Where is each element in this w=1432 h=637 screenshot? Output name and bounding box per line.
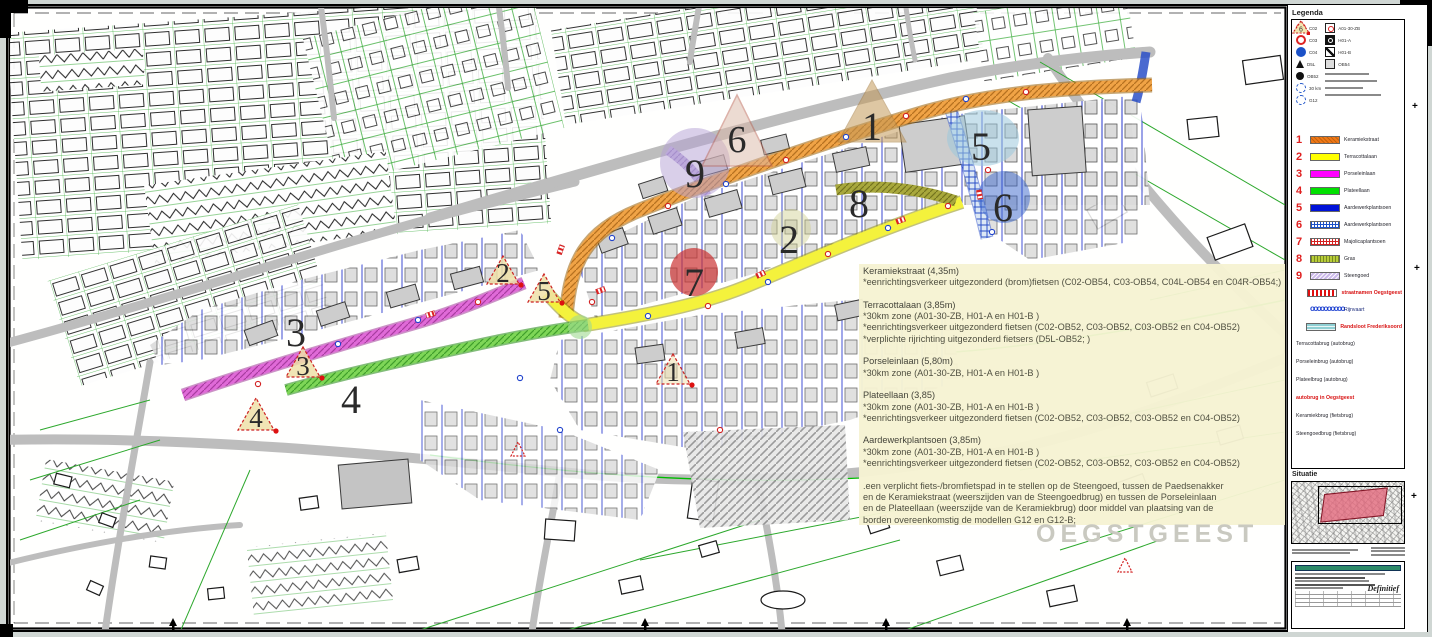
swatch-rijnvaart: oooooooooo (1310, 305, 1340, 314)
marker-street-8: 8 (849, 181, 869, 226)
streetnames-label: straatnamen Oegstgeest (1341, 290, 1402, 296)
situatie-inset-map (1291, 481, 1405, 544)
annotation-line: *30km zone (A01-30-ZB, H01-A en H01-B ) (863, 402, 1285, 413)
annotation-line: *verplichte rijrichting uitgezonderd fie… (863, 334, 1285, 345)
sign-label: D5L (1307, 62, 1315, 67)
street-number: 2 (1296, 151, 1306, 163)
swatch-porseleinlaan (1310, 170, 1340, 178)
bridge-label: Terracottabrug (autobrug) (1296, 341, 1355, 347)
marker-street-3: 3 (286, 310, 306, 355)
street-label: Steengoed (1344, 273, 1369, 279)
legend-signs: C02 C03 C04 D5L OB52 30 km G12 A01-30-ZB… (1296, 23, 1402, 105)
sign-label: A01-30-ZB (1338, 26, 1360, 31)
sign-label: H01-B (1338, 50, 1351, 55)
annotation-line (863, 379, 1285, 390)
street-label: Keramiekstraat (1344, 137, 1379, 143)
annotation-line: en de Plateellaan (weerszijde van de Ker… (863, 503, 1285, 514)
swatch-plateellaan (1310, 187, 1340, 195)
street-label: Plateellaan (1344, 188, 1370, 194)
street-label: Porseleinlaan (1344, 171, 1375, 177)
legend-rijnvaart-row: ooooooooooRijnvaart (1296, 301, 1402, 318)
street-number: 3 (1296, 168, 1306, 180)
annotation-line: *30km zone (A01-30-ZB, H01-A en H01-B ) (863, 447, 1285, 458)
annotation-line (863, 345, 1285, 356)
sign-label: OB52 (1307, 74, 1319, 79)
marker-street-7: 7 (684, 260, 704, 305)
marker-street-5: 5 (971, 124, 991, 169)
marker-street-6: 6 (993, 185, 1013, 230)
swatch-majolicaplantsoen (1310, 238, 1340, 246)
sign-icon-zone-30 (1325, 23, 1335, 33)
swatch-randsloot (1306, 323, 1336, 331)
annotation-line (863, 424, 1285, 435)
annotation-line: *eenrichtingsverkeer uitgezonderd fietse… (863, 322, 1285, 333)
street-label: Gras (1344, 256, 1355, 262)
rijnvaart-label: Rijnvaart (1344, 307, 1364, 313)
sign-icon-mandatory (1296, 47, 1306, 57)
swatch-keramiekstraat (1310, 136, 1340, 144)
street-label: Terracottalaan (1344, 154, 1377, 160)
marker-bridge-3: 3 (296, 351, 310, 381)
svg-text:6: 6 (1299, 27, 1303, 34)
legend-street-row: 3Porseleinlaan (1296, 165, 1402, 182)
sign-label: 30 km (1309, 86, 1321, 91)
annotation-line: *eenrichtingsverkeer uitgezonderd fietse… (863, 413, 1285, 424)
bridge-label: Steengoedbrug (fietsbrug) (1296, 431, 1356, 437)
sign-label: C03 (1309, 38, 1317, 43)
legend-street-row: 4Plateellaan (1296, 182, 1402, 199)
marker-bridge-1: 1 (666, 357, 680, 387)
legend-bridge-row: 6Steengoedbrug (fietsbrug) (1296, 425, 1402, 443)
legend-street-row: 1Keramiekstraat (1296, 131, 1402, 148)
annotation-line (863, 289, 1285, 300)
street-number: 1 (1296, 134, 1306, 146)
revision-table (1295, 591, 1401, 607)
marker-bridge-5: 5 (537, 276, 551, 306)
legend-street-row: 2Terracottalaan (1296, 148, 1402, 165)
marker-street-9: 9 (685, 151, 705, 196)
street-label: Aardewerkplantsoen (1344, 222, 1391, 228)
swatch-steengoed (1310, 272, 1340, 280)
street-number: 6 (1296, 219, 1306, 231)
annotation-line: Aardewerkplantsoen (3,85m) (863, 435, 1285, 446)
legend-bridge-row: 4autobrug in Oegstgeest (1296, 389, 1402, 407)
swatch-gras (1310, 255, 1340, 263)
sign-label: C02 (1309, 26, 1317, 31)
sign-icon-subplate (1325, 59, 1335, 69)
annotation-line: Porseleinlaan (5,80m) (863, 356, 1285, 367)
street-label: Majolicaplantsoen (1344, 239, 1386, 245)
oegstgeest-watermark: OEGSTGEEST (1036, 520, 1258, 549)
annotation-line: Plateellaan (3,85) (863, 390, 1285, 401)
legend-title: Legenda (1292, 8, 1427, 17)
sign-icon-dashed-circle (1296, 83, 1306, 93)
status-definitief: Definitief (1367, 584, 1399, 593)
street-number: 7 (1296, 236, 1306, 248)
swatch-aardewerkplantsoen-hatch (1310, 221, 1340, 229)
legend-street-row: 9Steengoed (1296, 267, 1402, 284)
legend-street-row: 6Aardewerkplantsoen (1296, 216, 1402, 233)
bridge-triangle-icon: 6 (1292, 20, 1310, 35)
annotation-line: *eenrichtingsverkeer uitgezonderd fietse… (863, 458, 1285, 469)
legend-bridge-row: 5Keramiekbrug (fietsbrug) (1296, 407, 1402, 425)
annotation-line: Terracottalaan (3,85m) (863, 300, 1285, 311)
annotation-line (863, 469, 1285, 480)
legend-bridge-row: 1Terracottabrug (autobrug) (1296, 335, 1402, 353)
bridge-label: autobrug in Oegstgeest (1296, 395, 1354, 401)
annotation-line: *30km zone (A01-30-ZB, H01-A en H01-B ) (863, 368, 1285, 379)
legend-street-row: 7Majolicaplantsoen (1296, 233, 1402, 250)
annotation-line: Keramiekstraat (4,35m) (863, 266, 1285, 277)
sign-icon-square-black (1325, 35, 1335, 45)
swatch-aardewerkplantsoen (1310, 204, 1340, 212)
marker-bridge-6: 6 (728, 119, 747, 161)
randsloot-label: Randsloot Frederiksoord (1340, 324, 1402, 330)
legend-streetnames-row: straatnamen Oegstgeest (1296, 284, 1402, 301)
marker-bridge-2: 2 (496, 258, 510, 288)
plan-sheet: 1 2 3 4 5 6 7 8 9 6 2 5 3 4 1 Keramiekst… (0, 0, 1432, 637)
bridge-label: Keramiekbrug (fietsbrug) (1296, 413, 1353, 419)
marker-street-4: 4 (341, 377, 361, 422)
street-label: Aardewerkplantsoen (1344, 205, 1391, 211)
sign-label: G12 (1309, 98, 1318, 103)
sign-icon-direction-arrow (1296, 60, 1304, 68)
street-number: 4 (1296, 185, 1306, 197)
title-block: Definitief (1291, 561, 1405, 629)
annotation-line: .een verplicht fiets-/bromfietspad in te… (863, 481, 1285, 492)
marker-bridge-4: 4 (249, 403, 263, 433)
street-number: 8 (1296, 253, 1306, 265)
title-block-header-bar (1295, 565, 1401, 571)
legend-box: C02 C03 C04 D5L OB52 30 km G12 A01-30-ZB… (1291, 19, 1405, 469)
bridge-label: Porseleinbrug (autobrug) (1296, 359, 1353, 365)
sign-icon-point (1296, 72, 1304, 80)
street-number: 5 (1296, 202, 1306, 214)
sign-label: OB54 (1338, 62, 1350, 67)
legend-panel: Legenda C02 C03 C04 D5L OB52 30 km G12 A… (1287, 5, 1427, 632)
legend-street-row: 8Gras (1296, 250, 1402, 267)
swatch-straatnamen (1307, 289, 1337, 297)
bridge-label: Plateelbrug (autobrug) (1296, 377, 1348, 383)
sign-label: H01-A (1338, 38, 1351, 43)
annotation-line: en de Keramiekstraat (weerszijden van de… (863, 492, 1285, 503)
legend-randsloot-row: Randsloot Frederiksoord (1296, 318, 1402, 335)
swatch-terracottalaan (1310, 153, 1340, 161)
street-number: 9 (1296, 270, 1306, 282)
legend-street-row: 5Aardewerkplantsoen (1296, 199, 1402, 216)
legend-bridge-row: 2Porseleinbrug (autobrug) (1296, 353, 1402, 371)
marker-street-1: 1 (862, 104, 882, 149)
marker-street-2: 2 (779, 217, 799, 262)
situatie-title: Situatie (1292, 471, 1317, 478)
sign-icon-square-diagonal (1325, 47, 1335, 57)
legend-bridge-row: 3Plateelbrug (autobrug) (1296, 371, 1402, 389)
sign-label: C04 (1309, 50, 1317, 55)
annotation-line: *30km zone (A01-30-ZB, H01-A en H01-B ) (863, 311, 1285, 322)
sign-icon-dashed-circle (1296, 95, 1306, 105)
annotation-line: *eenrichtingsverkeer uitgezonderd (brom)… (863, 277, 1285, 288)
traffic-measures-annotation: Keramiekstraat (4,35m) *eenrichtingsverk… (859, 264, 1285, 525)
sign-icon-no-entry (1296, 35, 1306, 45)
